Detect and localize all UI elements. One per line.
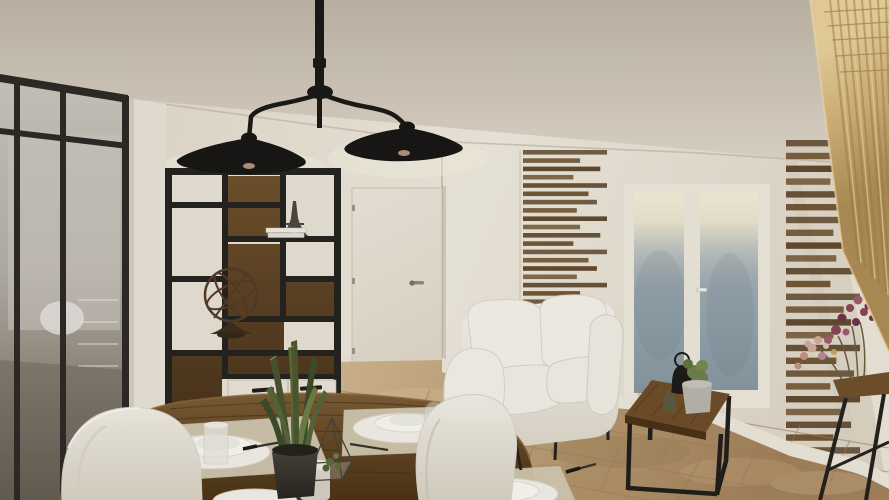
vignette — [0, 0, 889, 500]
interior-render — [0, 0, 889, 500]
interior-render-viewport — [0, 0, 889, 500]
